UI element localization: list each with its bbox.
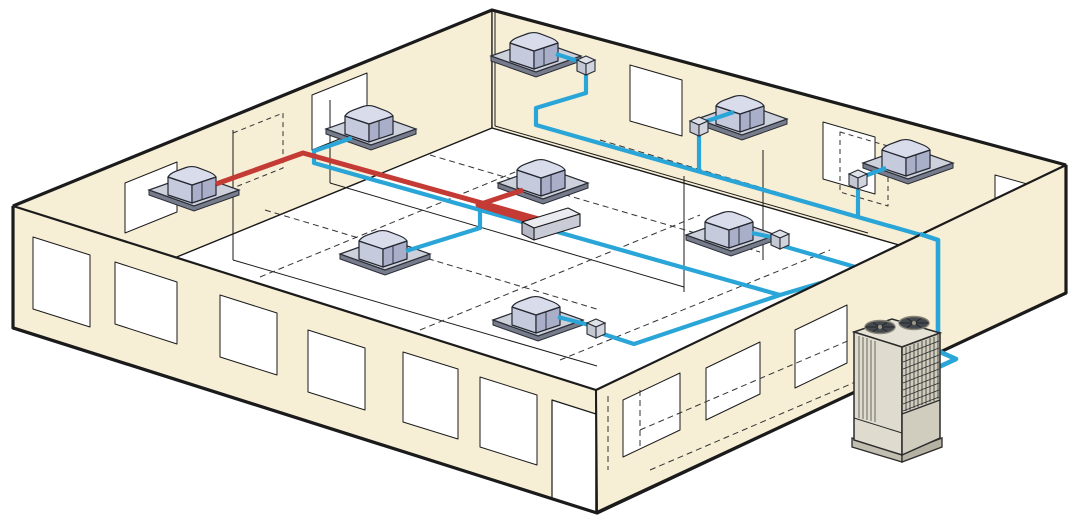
outdoor-unit bbox=[852, 317, 942, 463]
corner-edge bbox=[596, 390, 597, 513]
outdoor bbox=[852, 317, 942, 463]
branch-joint-4 bbox=[771, 230, 789, 249]
hvac-system-diagram bbox=[0, 0, 1076, 523]
isometric-building-scene bbox=[0, 0, 1076, 523]
branch-joint-1 bbox=[577, 56, 595, 75]
branch-joint-2 bbox=[690, 117, 708, 136]
branch-joint-5 bbox=[587, 319, 605, 338]
branch-joint-3 bbox=[849, 170, 867, 189]
door-opening bbox=[552, 400, 596, 513]
